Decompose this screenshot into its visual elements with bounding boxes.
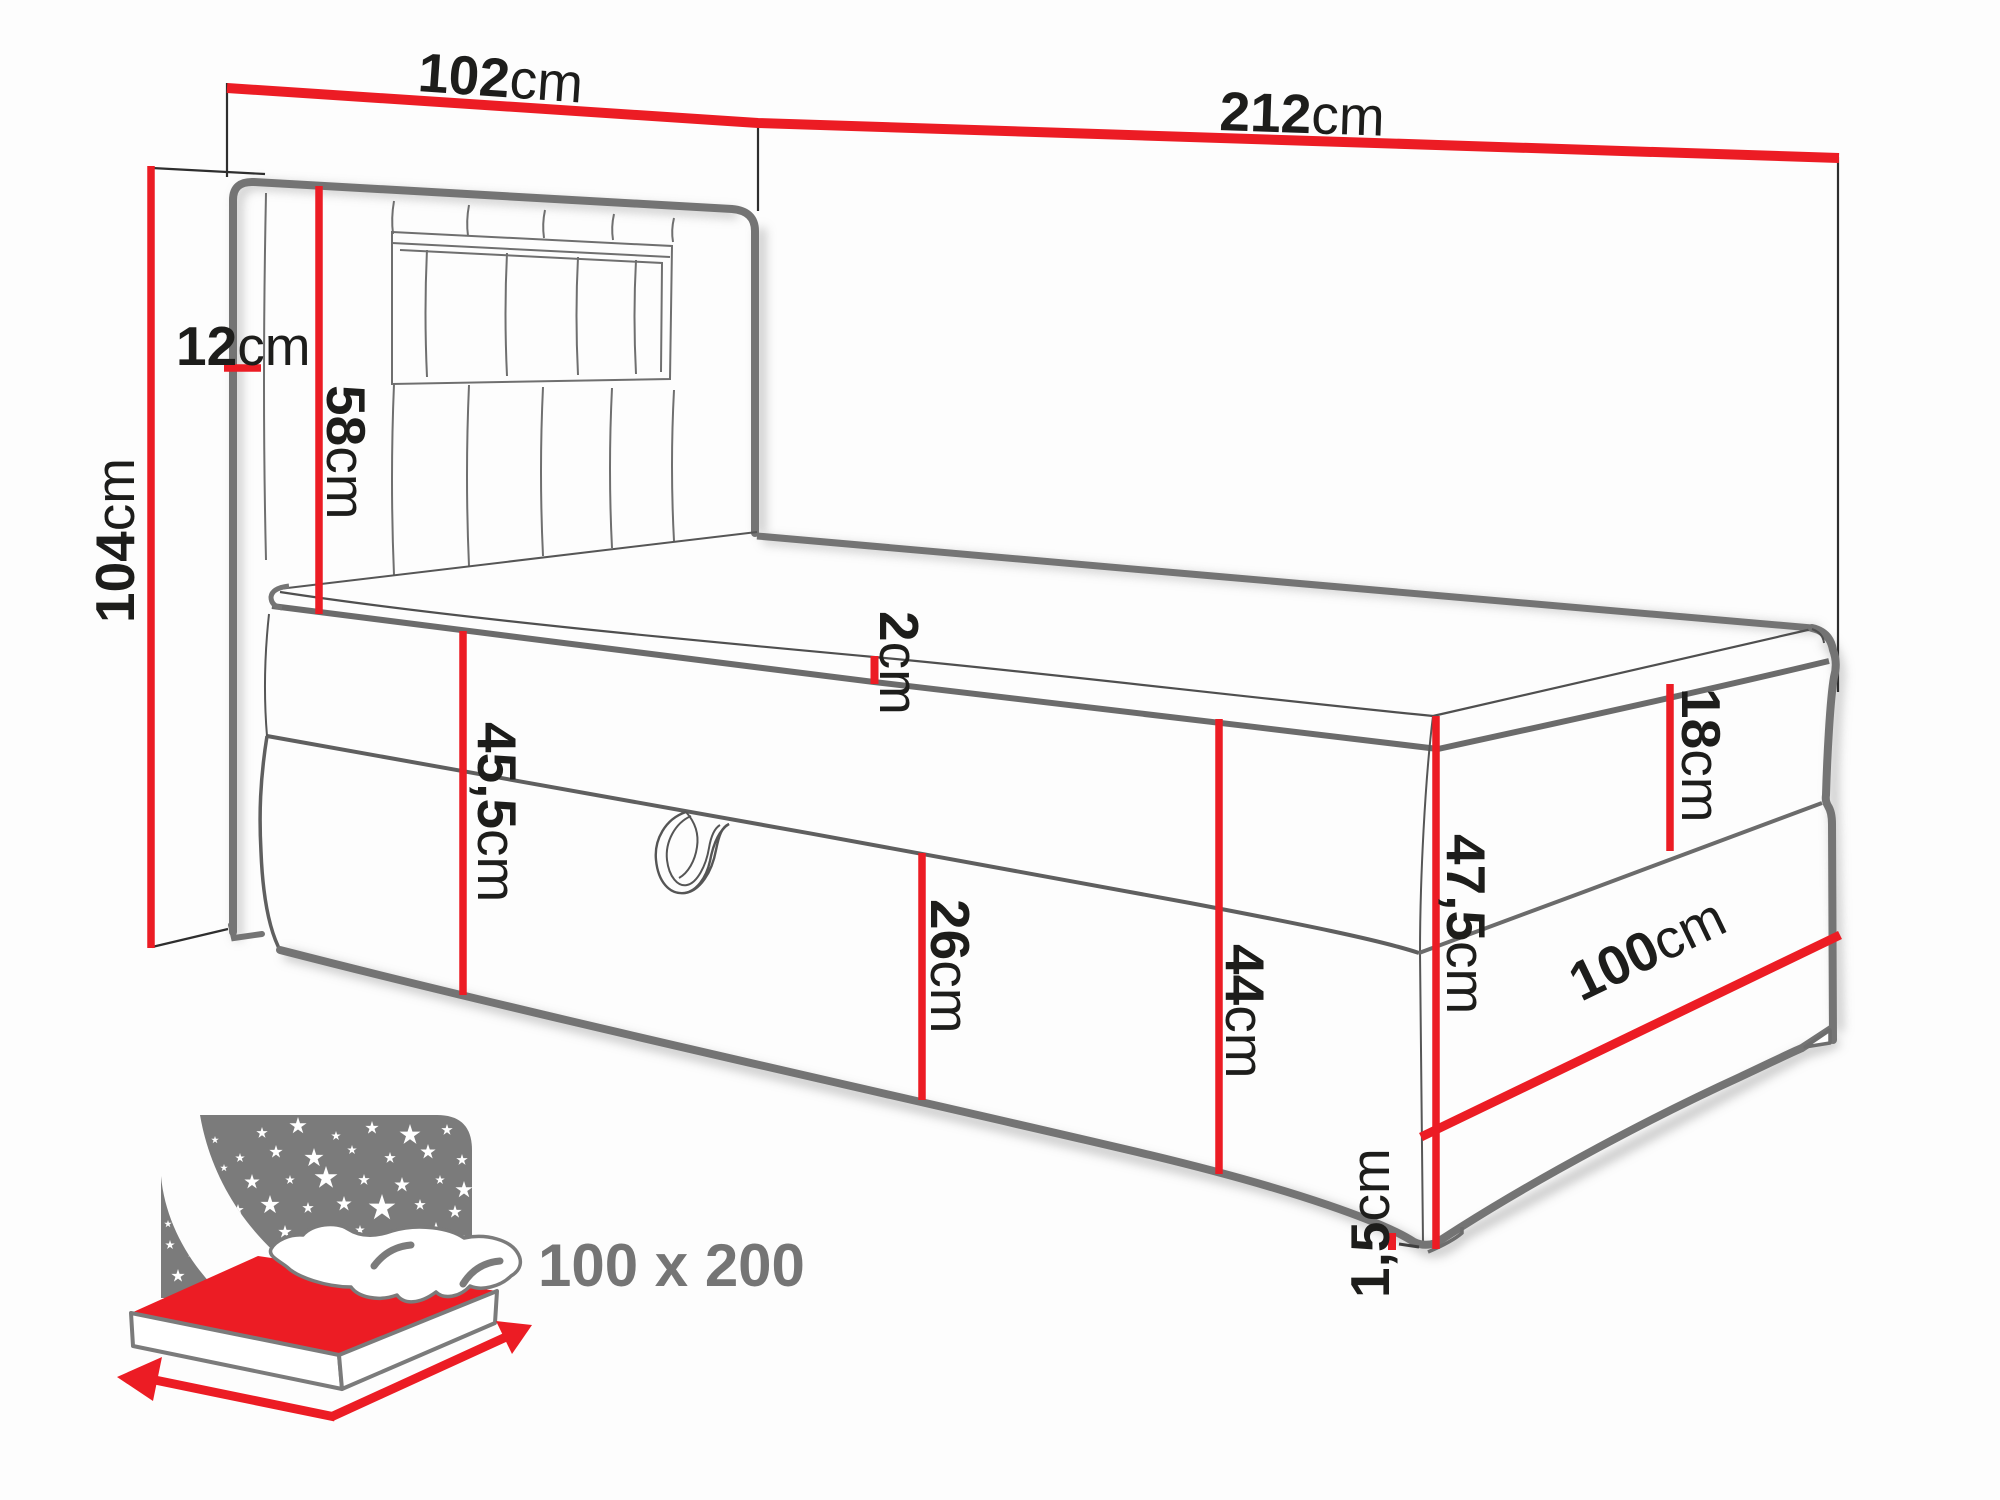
svg-text:102cm: 102cm (416, 41, 585, 114)
svg-text:212cm: 212cm (1219, 80, 1386, 148)
svg-text:1,5cm: 1,5cm (1339, 1148, 1401, 1298)
svg-text:45,5cm: 45,5cm (466, 722, 528, 902)
svg-text:47,5cm: 47,5cm (1435, 834, 1497, 1014)
svg-text:104cm: 104cm (84, 458, 146, 623)
svg-text:2cm: 2cm (868, 611, 930, 715)
svg-text:26cm: 26cm (919, 899, 981, 1034)
svg-text:58cm: 58cm (315, 385, 377, 520)
svg-text:100 x 200: 100 x 200 (538, 1232, 805, 1299)
svg-text:18cm: 18cm (1670, 688, 1732, 823)
svg-text:12cm: 12cm (176, 315, 311, 377)
svg-text:44cm: 44cm (1214, 944, 1276, 1079)
